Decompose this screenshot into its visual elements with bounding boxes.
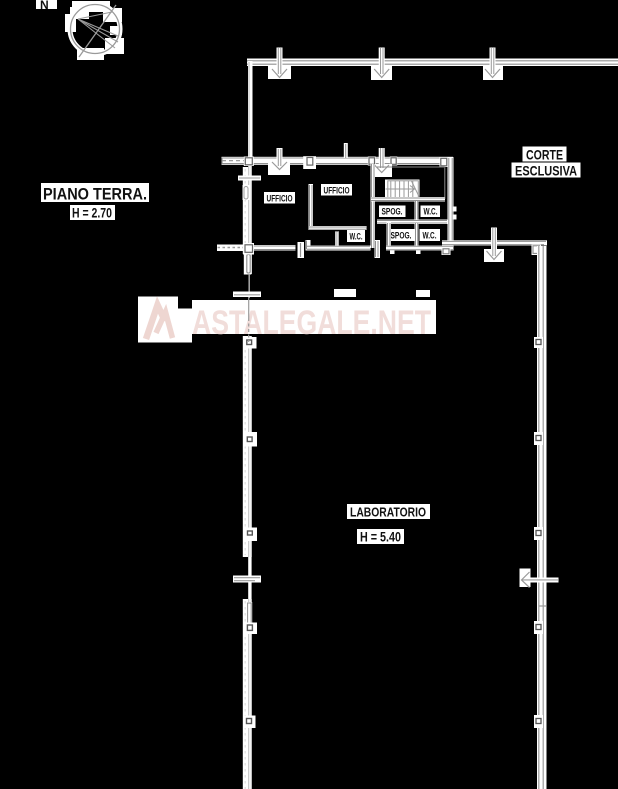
svg-text:W.C.: W.C. xyxy=(423,231,437,242)
svg-text:UFFICIO: UFFICIO xyxy=(267,194,293,205)
svg-text:H = 5.40: H = 5.40 xyxy=(360,530,401,545)
svg-text:UFFICIO: UFFICIO xyxy=(324,186,350,197)
svg-text:LABORATORIO: LABORATORIO xyxy=(350,505,426,520)
svg-text:H = 2.70: H = 2.70 xyxy=(72,205,112,221)
svg-text:W.C.: W.C. xyxy=(424,207,438,218)
svg-text:W.C.: W.C. xyxy=(350,232,363,243)
svg-text:SPOG.: SPOG. xyxy=(382,207,403,218)
svg-text:PIANO TERRA.: PIANO TERRA. xyxy=(43,185,147,204)
svg-text:ESCLUSIVA: ESCLUSIVA xyxy=(515,163,577,179)
svg-text:CORTE: CORTE xyxy=(526,147,563,163)
svg-text:SPOG.: SPOG. xyxy=(391,231,412,242)
svg-text:ASTALEGALE.NET: ASTALEGALE.NET xyxy=(192,304,431,342)
svg-text:N: N xyxy=(40,0,49,12)
